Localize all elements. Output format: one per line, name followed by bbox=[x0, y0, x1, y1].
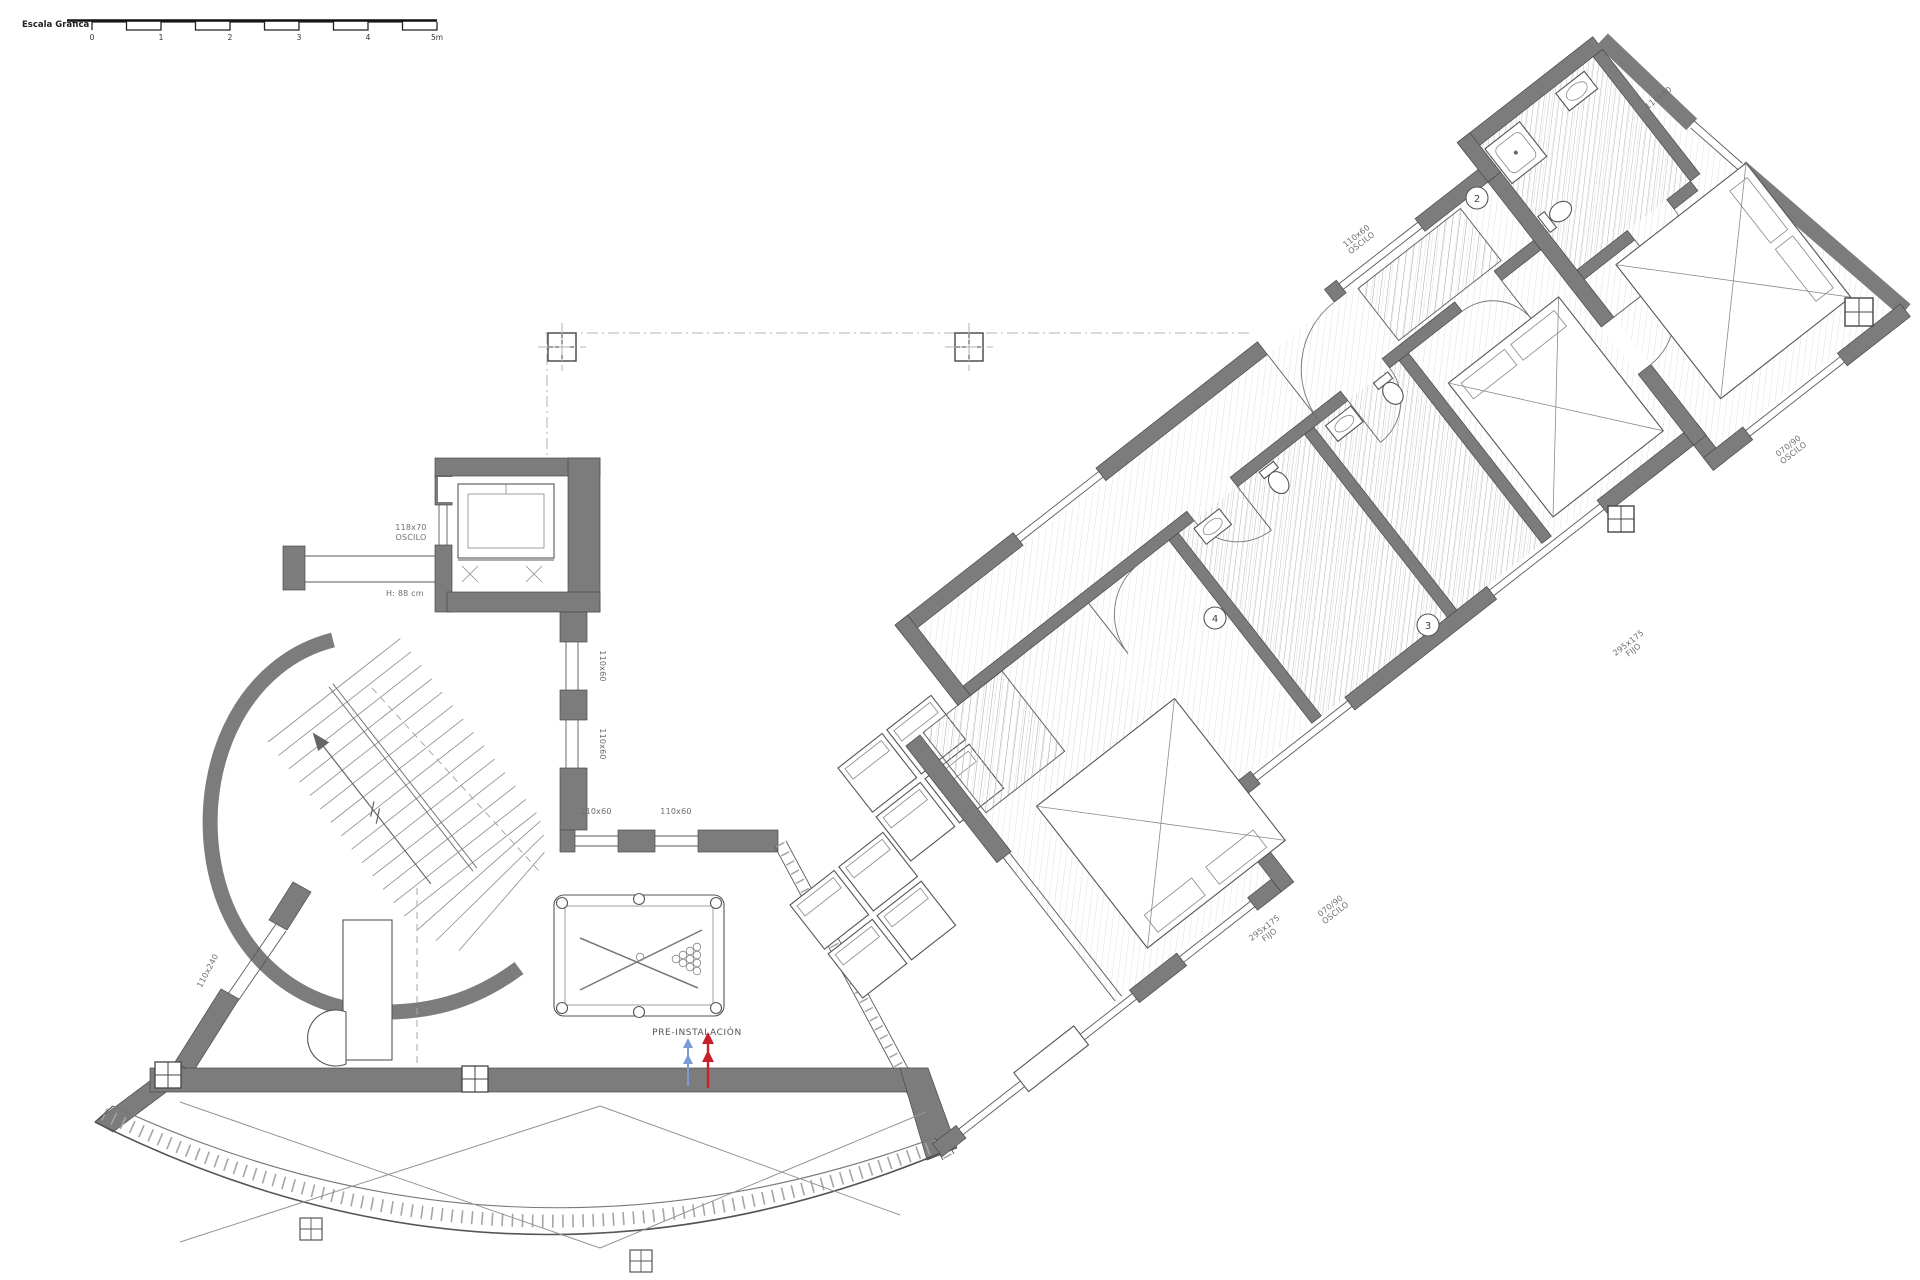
room-number-badge-3: 3 bbox=[1417, 614, 1439, 636]
billiard-table bbox=[554, 894, 724, 1018]
floor-plan-page: Escala Gráfica 0 1 2 3 4 5m bbox=[0, 0, 1920, 1280]
room-number-badge-2: 2 bbox=[1466, 187, 1488, 209]
elevator-door-recess bbox=[438, 477, 453, 502]
scale-tick-4: 4 bbox=[366, 33, 371, 42]
scale-tick-1: 1 bbox=[159, 33, 164, 42]
window-label-bottom-2: 110x60 bbox=[660, 807, 691, 816]
elevator-height-label: H: 88 cm bbox=[386, 589, 424, 598]
desk-chair bbox=[308, 1010, 346, 1066]
pre-installation-label: PRE-INSTALACIÓN bbox=[652, 1026, 742, 1038]
scale-bar-steps bbox=[92, 22, 437, 30]
window-label-left-diagonal: 110x240 bbox=[195, 953, 220, 990]
column-symbol bbox=[300, 1218, 322, 1240]
elevator-car bbox=[458, 484, 554, 558]
scale-bar-title: Escala Gráfica bbox=[22, 20, 89, 30]
window-label-left-lower: 110x60 bbox=[598, 728, 607, 759]
scale-bar: Escala Gráfica 0 1 2 3 4 5m bbox=[22, 20, 443, 42]
sofa-group-b bbox=[790, 832, 956, 998]
svg-text:2: 2 bbox=[1474, 194, 1480, 205]
games-room: PRE-INSTALACIÓN bbox=[308, 695, 1004, 1088]
desk bbox=[343, 920, 392, 1060]
column-symbol bbox=[630, 1250, 652, 1272]
column-symbol bbox=[1608, 506, 1634, 532]
svg-text:4: 4 bbox=[1212, 614, 1218, 625]
terrace-bottom-wall bbox=[150, 1068, 910, 1092]
svg-text:3: 3 bbox=[1425, 621, 1431, 632]
elevator-window-label-line1: 118x70 bbox=[395, 523, 426, 532]
floor-plan-canvas: Escala Gráfica 0 1 2 3 4 5m bbox=[0, 0, 1920, 1280]
room-number-badge-4: 4 bbox=[1204, 607, 1226, 629]
scale-tick-5: 5m bbox=[431, 33, 443, 42]
window-label-bottom-1: 110x60 bbox=[580, 807, 611, 816]
scale-tick-2: 2 bbox=[228, 33, 233, 42]
sliding-door-leaf bbox=[1014, 1026, 1089, 1092]
elevator-window-label-line2: OSCILO bbox=[396, 533, 427, 542]
stair-direction-arrow bbox=[319, 740, 431, 883]
bedroom-wing bbox=[646, 0, 1920, 1158]
elevator-shaft: 118x70 OSCILO H: 88 cm bbox=[283, 458, 600, 612]
scale-tick-0: 0 bbox=[90, 33, 95, 42]
stair-treads bbox=[264, 634, 574, 964]
column-symbol bbox=[1845, 298, 1873, 326]
column-symbol bbox=[945, 323, 993, 371]
window-label-left-upper: 110x60 bbox=[598, 650, 607, 681]
column-symbol bbox=[462, 1066, 488, 1092]
scale-tick-3: 3 bbox=[297, 33, 302, 42]
column-symbol bbox=[538, 323, 586, 371]
column-symbol bbox=[155, 1062, 181, 1088]
